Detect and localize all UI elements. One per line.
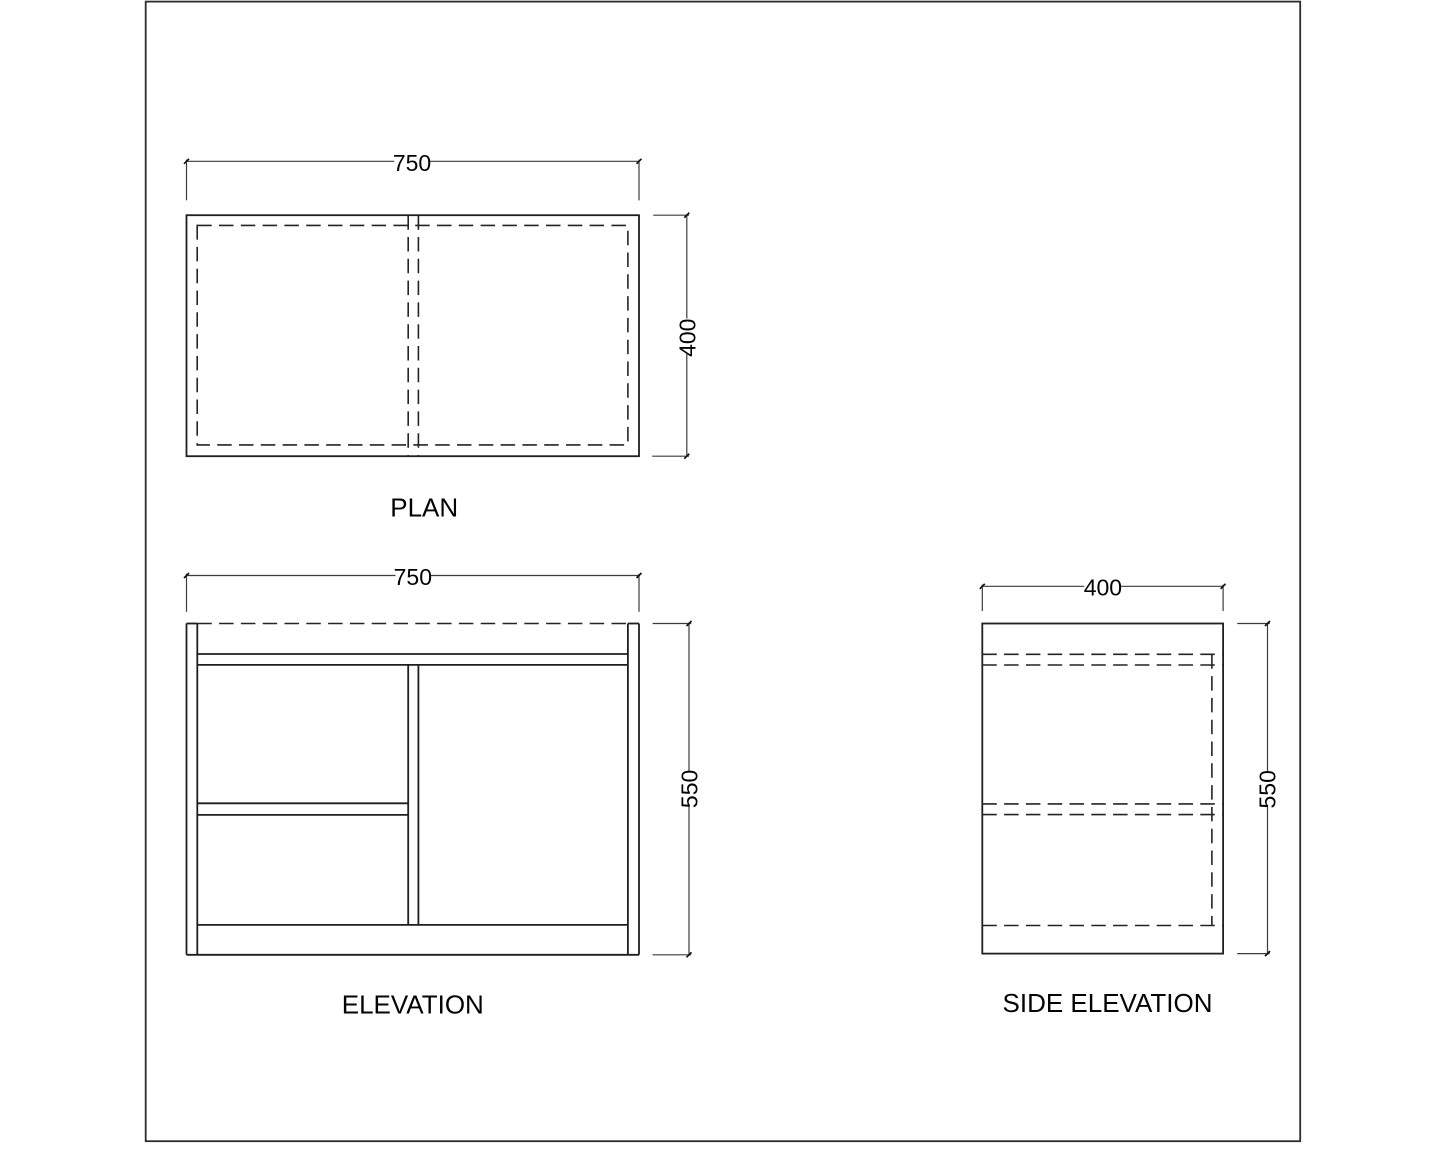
svg-text:PLAN: PLAN [390,492,458,522]
svg-text:ELEVATION: ELEVATION [342,990,484,1020]
svg-text:550: 550 [677,770,703,808]
svg-text:SIDE ELEVATION: SIDE ELEVATION [1003,988,1213,1018]
svg-text:750: 750 [393,150,431,176]
svg-text:400: 400 [1084,575,1122,601]
svg-text:550: 550 [1254,770,1280,808]
svg-text:400: 400 [675,319,701,357]
svg-text:750: 750 [394,564,432,590]
